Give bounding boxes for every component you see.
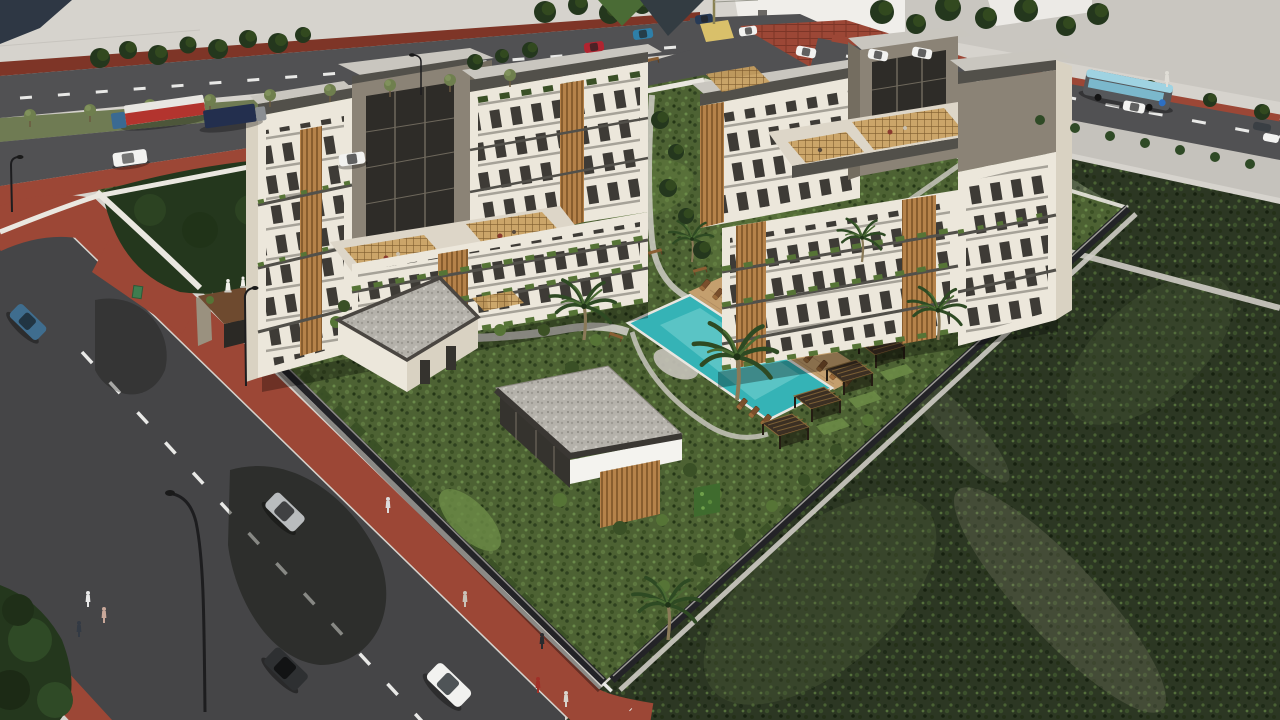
right-tower [950, 48, 1072, 346]
crane-base [700, 20, 734, 42]
trash-bin [132, 286, 143, 299]
left-tower [246, 81, 352, 382]
green-wall-art [694, 483, 720, 517]
aerial-render: Aerial 3D architectural rendering of a g… [0, 0, 1280, 720]
render-viewport: Aerial 3D architectural rendering of a g… [0, 0, 1280, 720]
